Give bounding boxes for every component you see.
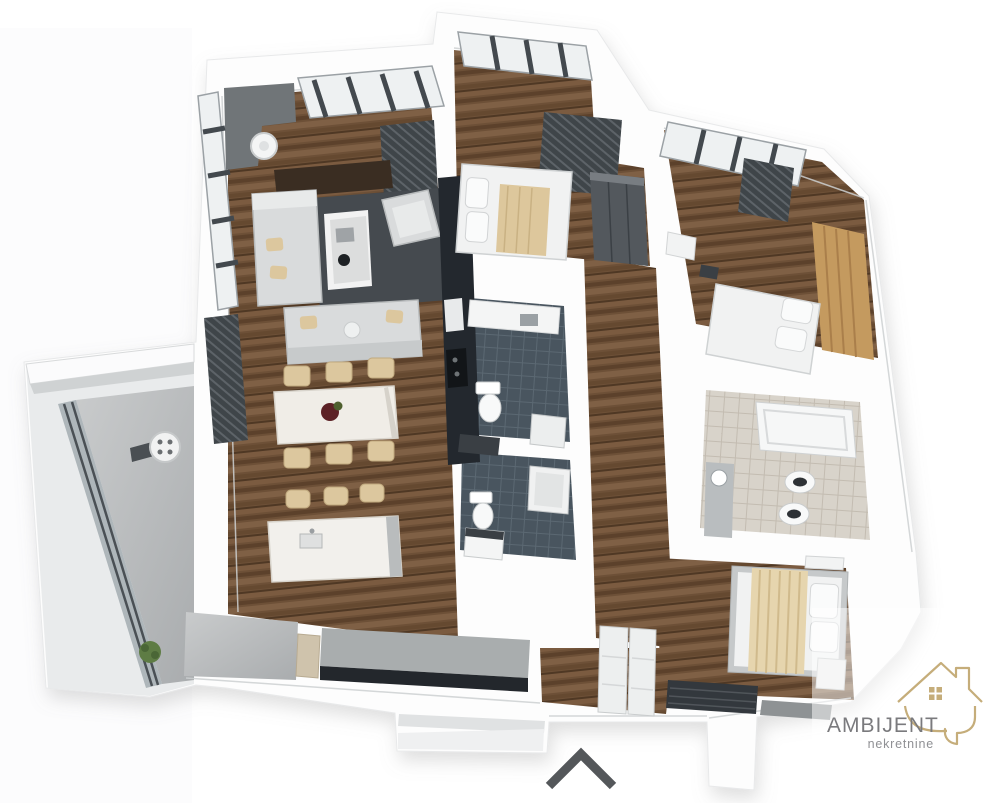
sofa-pillow bbox=[270, 265, 288, 279]
coffee-table-book bbox=[336, 227, 355, 242]
round-cushion bbox=[344, 322, 360, 338]
sink bbox=[520, 314, 538, 326]
closet bbox=[628, 628, 656, 716]
coffee-table-decor bbox=[338, 254, 350, 266]
brand-tagline: nekretnine bbox=[868, 737, 934, 751]
chair bbox=[368, 358, 394, 378]
sofa-pillow bbox=[266, 237, 284, 251]
toilet bbox=[473, 503, 493, 529]
chair bbox=[284, 366, 310, 386]
pillow bbox=[465, 211, 489, 242]
sofa-pillow bbox=[300, 315, 318, 329]
cooktop bbox=[446, 348, 468, 388]
chair bbox=[284, 448, 310, 468]
plant bbox=[139, 641, 161, 663]
kitchen-island bbox=[268, 516, 402, 582]
pillow bbox=[465, 177, 489, 208]
nightstand bbox=[805, 556, 844, 570]
radiator bbox=[738, 158, 794, 222]
pillow bbox=[780, 298, 813, 325]
entry-floor bbox=[184, 612, 298, 680]
sofa-pillow bbox=[385, 309, 403, 323]
entry-cabinet bbox=[296, 634, 320, 678]
stool bbox=[324, 487, 348, 505]
toilet bbox=[479, 394, 501, 422]
wardrobe bbox=[590, 172, 648, 266]
chair bbox=[326, 362, 352, 382]
faucet bbox=[310, 529, 315, 534]
shower-tray bbox=[530, 414, 566, 448]
island-sink bbox=[300, 534, 322, 548]
brand-name: AMBIJENT bbox=[827, 714, 939, 737]
chair bbox=[368, 441, 394, 461]
closet bbox=[598, 626, 628, 714]
balcony bbox=[26, 344, 194, 696]
chair bbox=[326, 444, 352, 464]
toilet-tank bbox=[470, 492, 492, 503]
toilet-tank bbox=[476, 382, 500, 394]
stool bbox=[286, 490, 310, 508]
floor-plan-page: AMBIJENT nekretnine bbox=[0, 0, 1000, 803]
floor-plan-canvas: AMBIJENT nekretnine bbox=[0, 0, 1000, 803]
kitchen-sink bbox=[444, 298, 464, 332]
pillow bbox=[774, 326, 807, 353]
grill-table bbox=[150, 432, 180, 462]
stool bbox=[360, 484, 384, 502]
sink bbox=[711, 470, 727, 486]
